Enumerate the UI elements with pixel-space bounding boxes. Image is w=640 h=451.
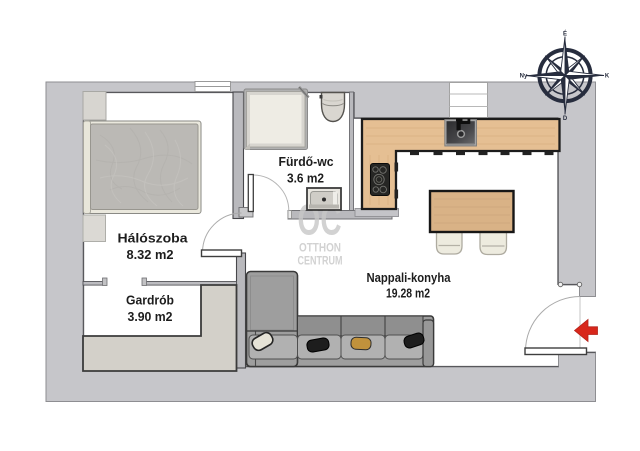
svg-text:Fürdő-wc: Fürdő-wc bbox=[279, 154, 334, 169]
svg-text:3.6 m2: 3.6 m2 bbox=[287, 171, 324, 186]
svg-text:D: D bbox=[563, 116, 568, 122]
svg-text:CENTRUM: CENTRUM bbox=[298, 254, 343, 268]
svg-text:K: K bbox=[605, 74, 610, 80]
svg-text:Ny: Ny bbox=[520, 74, 528, 80]
svg-text:3.90 m2: 3.90 m2 bbox=[128, 309, 173, 324]
svg-text:É: É bbox=[563, 30, 567, 38]
svg-text:Gardrób: Gardrób bbox=[126, 293, 174, 308]
svg-text:Nappali-konyha: Nappali-konyha bbox=[367, 270, 452, 285]
svg-text:8.32 m2: 8.32 m2 bbox=[127, 247, 174, 262]
svg-text:OTTHON: OTTHON bbox=[299, 241, 341, 255]
svg-text:Hálószoba: Hálószoba bbox=[118, 231, 189, 246]
svg-text:19.28 m2: 19.28 m2 bbox=[386, 286, 430, 301]
